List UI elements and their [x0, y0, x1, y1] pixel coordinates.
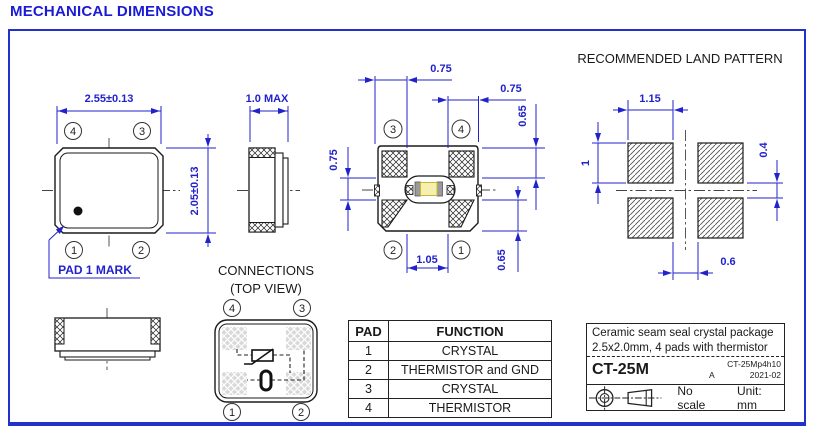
- pad-number-cell: 2: [349, 361, 389, 380]
- dim-pad-gap-bottom: 1.05: [416, 254, 437, 266]
- dim-pad-width-left: 0.75: [430, 63, 451, 75]
- pad1-mark-label: PAD 1 MARK: [58, 263, 132, 277]
- part-number: CT-25M: [587, 357, 649, 379]
- connections-subtitle: (TOP VIEW): [230, 281, 302, 296]
- bottom-view-pad-4: 4: [458, 124, 464, 136]
- side-view: 1.0 MAX: [237, 93, 300, 232]
- datasheet-page: MECHANICAL DIMENSIONS: [0, 0, 814, 433]
- package-outline: [55, 148, 163, 233]
- pad-number-cell: 3: [349, 380, 389, 399]
- top-view-pad-2: 2: [138, 245, 144, 257]
- thermistor-terminal-left: [415, 182, 421, 196]
- connections-pad-3: 3: [299, 303, 305, 315]
- connections-pad-1: 1: [229, 407, 235, 419]
- crystal-symbol: [261, 371, 271, 390]
- pad-function-cell: THERMISTOR and GND: [389, 361, 552, 380]
- scale-note: No scale: [677, 384, 723, 412]
- date: 2021-02: [750, 370, 781, 381]
- unit-note: Unit: mm: [737, 384, 784, 412]
- pad-function-table: PAD FUNCTION 1 CRYSTAL 2 THERMISTOR and …: [348, 320, 552, 418]
- pad-function-cell: CRYSTAL: [389, 380, 552, 399]
- table-header-function: FUNCTION: [389, 321, 552, 342]
- land-dim-row-gap: 0.4: [758, 141, 770, 157]
- pad1-mark-dot: [74, 207, 83, 216]
- connections-title: CONNECTIONS: [218, 263, 314, 278]
- connections-pad-2: 2: [298, 407, 304, 419]
- package-description: Ceramic seam seal crystal package 2.5x2.…: [587, 324, 784, 357]
- bottom-view: 3 4 2 1 0.75 0.75: [328, 63, 545, 273]
- land-dim-col-gap: 0.6: [720, 256, 735, 268]
- table-row: 2 THERMISTOR and GND: [349, 361, 552, 380]
- front-view: [55, 308, 160, 370]
- pad-function-cell: CRYSTAL: [389, 342, 552, 361]
- dim-pad-height-bottom: 0.65: [496, 249, 508, 270]
- connections-pad-4: 4: [229, 303, 235, 315]
- table-header-pad: PAD: [349, 321, 389, 342]
- pad-number-cell: 1: [349, 342, 389, 361]
- description-line1: Ceramic seam seal crystal package: [592, 326, 779, 341]
- revision: A: [709, 370, 715, 381]
- top-view-width-dim: 2.55±0.13: [85, 93, 134, 105]
- land-pattern: RECOMMENDED LAND PATTERN 1.15: [577, 51, 783, 280]
- connections-view: CONNECTIONS (TOP VIEW) 4 3: [215, 263, 317, 421]
- pad-function-cell: THERMISTOR: [389, 399, 552, 418]
- dim-pad-width-right: 0.75: [500, 83, 521, 95]
- dim-pad-height-top: 0.65: [517, 105, 529, 126]
- document-number: CT-25Mp4h10: [709, 359, 781, 370]
- top-view-height-dim: 2.05±0.13: [189, 167, 201, 216]
- table-row: 3 CRYSTAL: [349, 380, 552, 399]
- side-view-thickness-dim: 1.0 MAX: [246, 93, 289, 105]
- land-dim-pad-height: 1: [580, 160, 592, 166]
- dim-pad-gap-left: 0.75: [328, 149, 340, 170]
- first-angle-projection-icon: [587, 385, 663, 411]
- thermistor-body: [421, 183, 438, 196]
- bottom-view-pad-3: 3: [390, 124, 396, 136]
- top-view-pad-3: 3: [139, 126, 145, 138]
- document-info: CT-25Mp4h10 A 2021-02: [709, 357, 784, 381]
- top-view-pad-4: 4: [70, 126, 76, 138]
- land-dim-pad-width: 1.15: [639, 93, 660, 105]
- table-row: 4 THERMISTOR: [349, 399, 552, 418]
- thermistor-terminal-right: [437, 182, 443, 196]
- bottom-view-pad-1: 1: [458, 245, 464, 257]
- description-line2: 2.5x2.0mm, 4 pads with thermistor: [592, 341, 779, 356]
- title-block: Ceramic seam seal crystal package 2.5x2.…: [586, 323, 785, 411]
- land-pattern-title: RECOMMENDED LAND PATTERN: [577, 51, 782, 66]
- top-view-pad-1: 1: [71, 245, 77, 257]
- pad-number-cell: 4: [349, 399, 389, 418]
- table-row: 1 CRYSTAL: [349, 342, 552, 361]
- bottom-view-pad-2: 2: [390, 245, 396, 257]
- top-view: 4 3 1 2 2.55±0.13: [42, 93, 216, 278]
